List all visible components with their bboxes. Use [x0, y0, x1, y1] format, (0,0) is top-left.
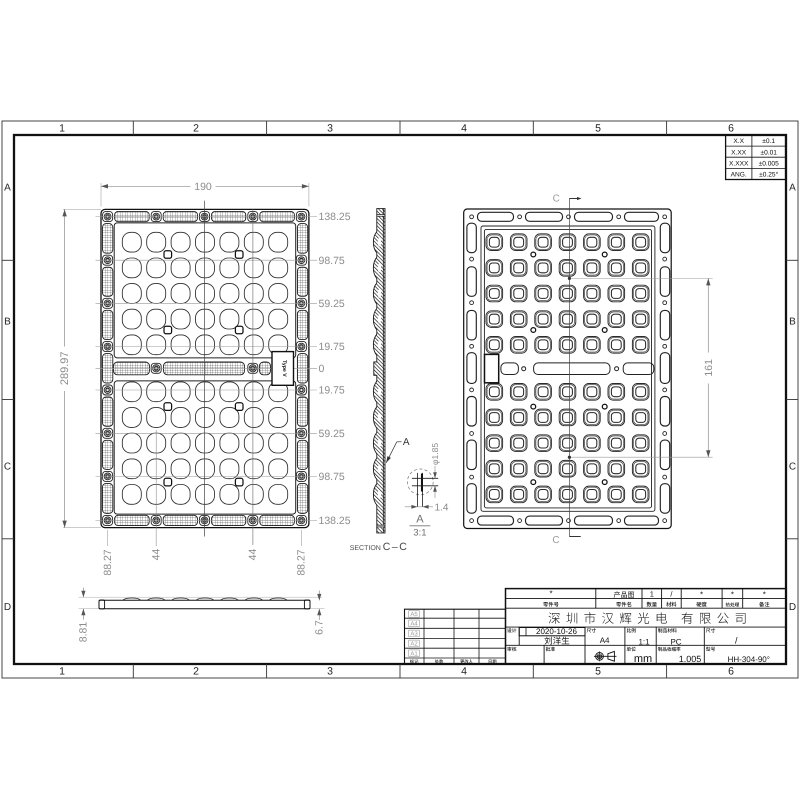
svg-text:1.005: 1.005: [679, 654, 702, 664]
svg-text:*: *: [700, 590, 703, 599]
svg-text:D: D: [789, 602, 796, 613]
svg-text:59.25: 59.25: [319, 298, 345, 310]
svg-text:19.75: 19.75: [319, 385, 345, 397]
svg-text:3: 3: [327, 666, 333, 678]
svg-text:88.27: 88.27: [296, 549, 308, 575]
svg-text:1: 1: [59, 123, 65, 135]
svg-text:4: 4: [461, 123, 467, 135]
svg-text:19.75: 19.75: [319, 341, 345, 353]
svg-text:A: A: [789, 183, 796, 194]
svg-text:C: C: [4, 462, 11, 473]
svg-text:1.4: 1.4: [435, 502, 449, 513]
svg-text:44: 44: [247, 549, 259, 561]
svg-text:59.25: 59.25: [319, 428, 345, 440]
svg-text:*: *: [731, 590, 734, 599]
svg-text:X.X: X.X: [733, 138, 744, 145]
svg-text:X.XXX: X.XXX: [729, 161, 749, 168]
svg-text:6: 6: [728, 123, 734, 135]
svg-text:3:1: 3:1: [413, 528, 426, 539]
svg-text:138.25: 138.25: [319, 211, 351, 223]
svg-text:φ1.85: φ1.85: [430, 443, 440, 465]
svg-text:±0.25°: ±0.25°: [759, 172, 778, 179]
svg-text:2: 2: [193, 123, 199, 135]
svg-text:A: A: [403, 437, 410, 448]
svg-text:6: 6: [728, 666, 734, 678]
svg-text:C: C: [789, 462, 796, 473]
svg-text:2020-10-26: 2020-10-26: [536, 627, 577, 636]
svg-text:A2: A2: [410, 641, 418, 648]
svg-text:A4: A4: [410, 620, 418, 627]
svg-text:±0.005: ±0.005: [759, 161, 779, 168]
svg-text:B: B: [4, 317, 11, 328]
svg-text:6.7: 6.7: [314, 620, 326, 635]
svg-text:88.27: 88.27: [102, 549, 114, 575]
svg-text:8.81: 8.81: [78, 622, 90, 643]
svg-text:mm: mm: [634, 653, 652, 665]
svg-text:Type V: Type V: [281, 360, 287, 377]
svg-text:±0.1: ±0.1: [762, 138, 775, 145]
svg-text:138.25: 138.25: [319, 515, 351, 527]
svg-text:1: 1: [650, 590, 654, 599]
svg-text:98.75: 98.75: [319, 255, 345, 267]
svg-text:0: 0: [319, 363, 325, 375]
svg-text:1:1: 1:1: [638, 637, 650, 646]
svg-text:44: 44: [151, 549, 163, 561]
svg-text:D: D: [4, 602, 11, 613]
svg-text:1: 1: [59, 666, 65, 678]
svg-text:±0.01: ±0.01: [760, 149, 777, 156]
svg-text:PC: PC: [670, 637, 681, 646]
svg-text:289.97: 289.97: [59, 351, 71, 385]
svg-text:190: 190: [194, 181, 212, 193]
svg-text:A4: A4: [600, 636, 610, 645]
svg-text:161: 161: [703, 359, 715, 377]
svg-text:X.XX: X.XX: [731, 149, 747, 156]
svg-text:3: 3: [327, 123, 333, 135]
svg-text:98.75: 98.75: [319, 471, 345, 483]
svg-text:*: *: [763, 590, 766, 599]
svg-text:2: 2: [193, 666, 199, 678]
svg-text:A: A: [416, 514, 424, 526]
svg-text:B: B: [789, 317, 796, 328]
svg-text:A1: A1: [410, 650, 418, 657]
svg-text:ANG.: ANG.: [731, 172, 747, 179]
svg-text:HH-304-90°: HH-304-90°: [728, 655, 770, 664]
svg-text:C: C: [553, 193, 560, 204]
svg-text:A5: A5: [410, 611, 418, 618]
svg-text:A3: A3: [410, 631, 418, 638]
svg-text:5: 5: [595, 123, 601, 135]
svg-text:C: C: [552, 535, 559, 546]
svg-text:A: A: [4, 183, 11, 194]
svg-text:5: 5: [595, 666, 601, 678]
svg-text:4: 4: [461, 666, 467, 678]
svg-text:*: *: [549, 589, 552, 598]
